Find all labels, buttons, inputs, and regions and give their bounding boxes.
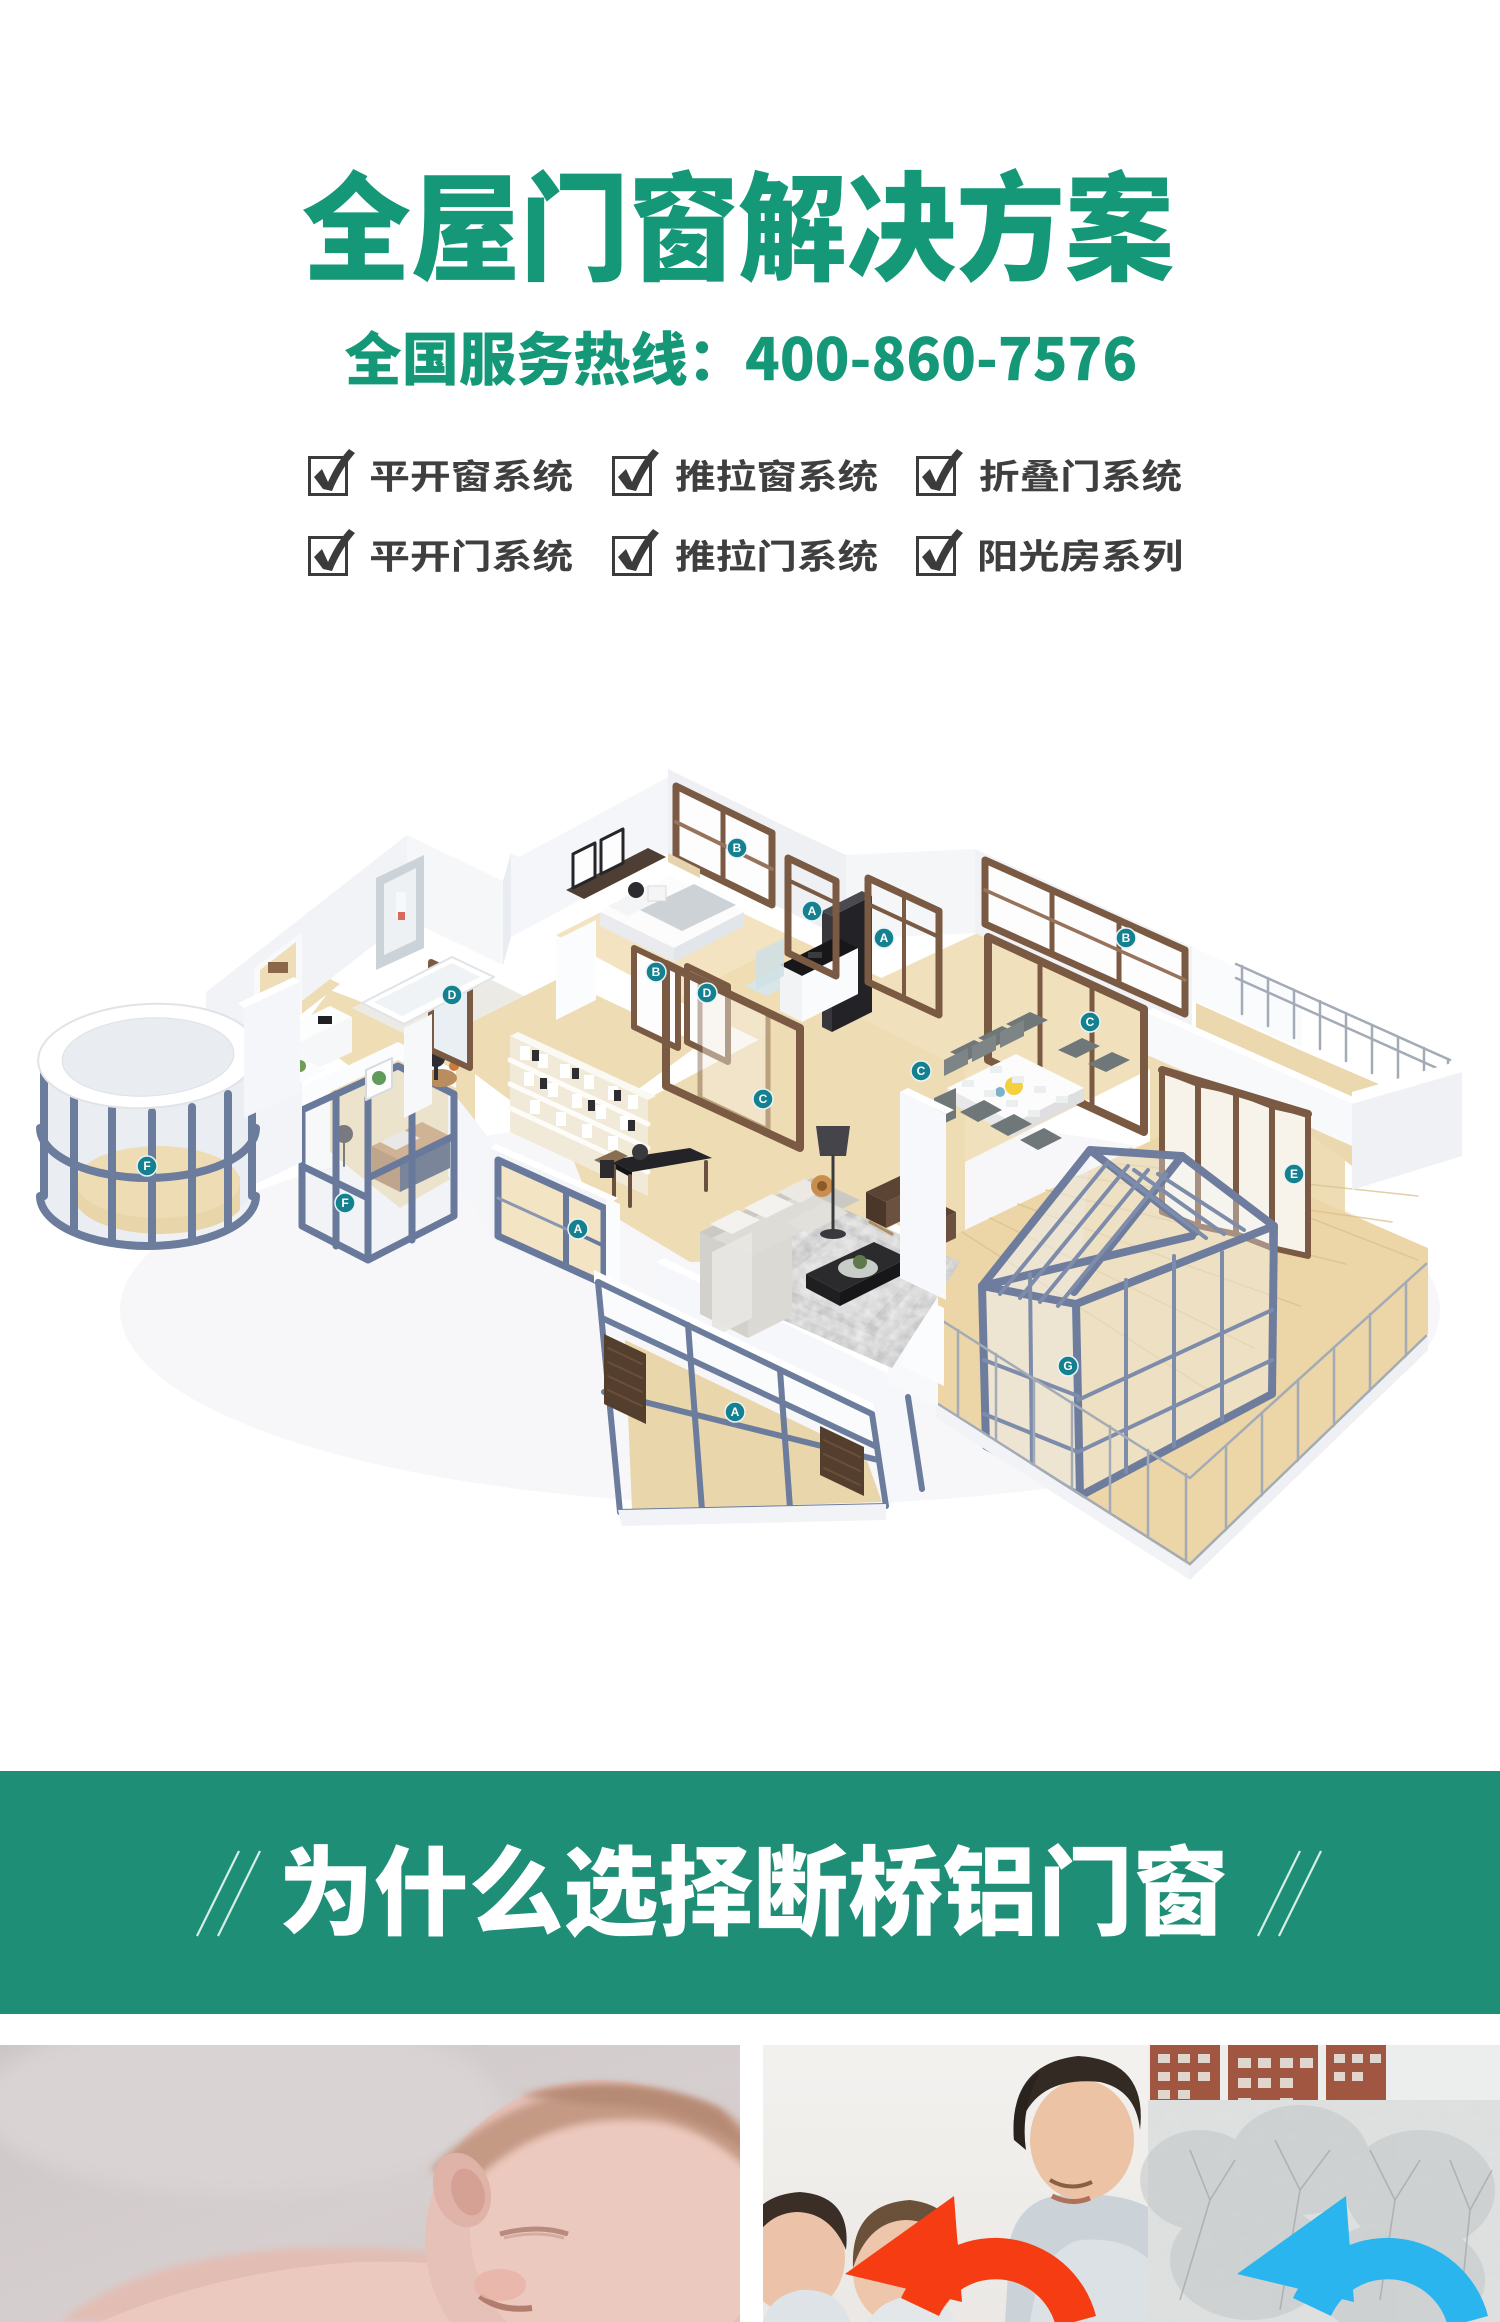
svg-text:C: C: [1086, 1015, 1095, 1029]
svg-text:F: F: [143, 1159, 150, 1173]
svg-text:G: G: [1063, 1359, 1072, 1373]
svg-text:D: D: [703, 986, 712, 1000]
svg-text:A: A: [880, 931, 889, 945]
svg-text:C: C: [917, 1064, 926, 1078]
svg-text:A: A: [731, 1405, 740, 1419]
svg-text:B: B: [652, 965, 661, 979]
svg-text:A: A: [808, 904, 817, 918]
svg-text:B: B: [733, 841, 742, 855]
svg-text:F: F: [341, 1196, 348, 1210]
svg-text:B: B: [1122, 931, 1131, 945]
svg-text:A: A: [574, 1222, 583, 1236]
svg-text:D: D: [448, 988, 457, 1002]
svg-text:E: E: [1290, 1167, 1298, 1181]
svg-text:C: C: [759, 1092, 768, 1106]
